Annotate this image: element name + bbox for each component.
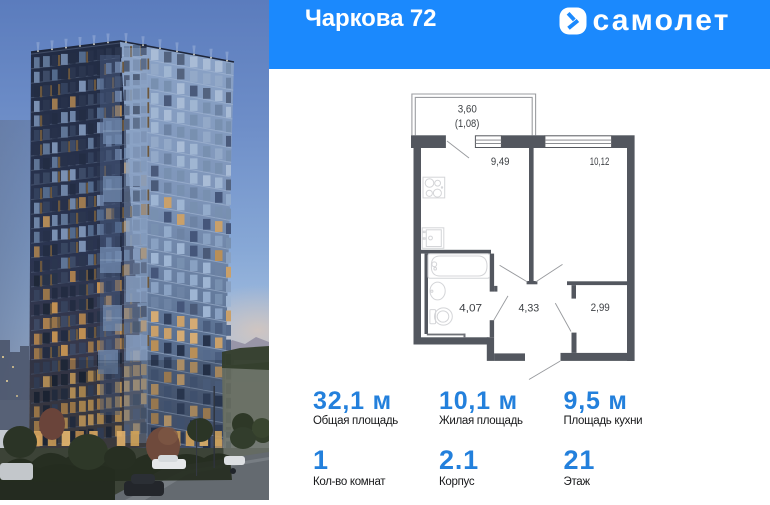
svg-text:9,49: 9,49 — [491, 156, 510, 168]
svg-text:10,12: 10,12 — [590, 156, 610, 168]
svg-text:3,60: 3,60 — [458, 103, 477, 115]
svg-text:2,99: 2,99 — [591, 302, 610, 314]
svg-text:4,33: 4,33 — [519, 303, 540, 315]
svg-text:(1,08): (1,08) — [455, 118, 480, 130]
svg-text:4,07: 4,07 — [459, 302, 482, 314]
